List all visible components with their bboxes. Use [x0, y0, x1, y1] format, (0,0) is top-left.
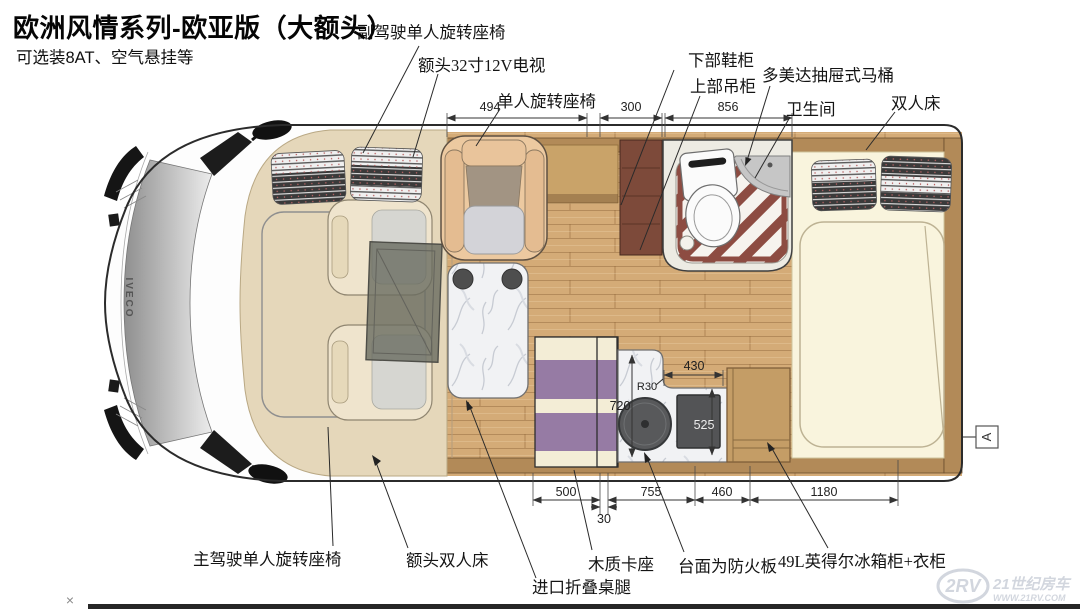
shower-drain [680, 236, 694, 250]
floorplan-page: IVECO [0, 0, 1080, 609]
callout-single-swivel-seat: 单人旋转座椅 [497, 92, 596, 111]
fridge-wardrobe-cabinet [727, 368, 790, 462]
vehicle-brand: IVECO [123, 277, 134, 318]
dim-460: 460 [712, 485, 733, 499]
callout-folding-table-legs: 进口折叠桌腿 [532, 578, 632, 597]
dim-430: 430 [684, 359, 705, 373]
callout-fireproof-countertop: 台面为防火板 [678, 557, 777, 576]
dim-300: 300 [621, 100, 642, 114]
section-marker: A [962, 426, 998, 448]
callout-lower-shoe-cabinet: 下部鞋柜 [688, 51, 754, 70]
bottom-bar [88, 604, 1080, 609]
dim-500: 500 [556, 485, 577, 499]
table-leg [502, 269, 522, 289]
callout-wooden-dinette: 木质卡座 [588, 555, 654, 574]
table-leg [453, 269, 473, 289]
headlight-icon [108, 213, 120, 226]
bed-pillow-right [880, 156, 952, 212]
watermark-logo: 2RV [944, 576, 982, 596]
callout-driver-seat: 主驾驶单人旋转座椅 [193, 550, 342, 569]
shoe-cabinet [620, 140, 662, 255]
callout-fridge-wardrobe: 49L英得尔冰箱柜+衣柜 [778, 552, 946, 571]
single-swivel-seat [441, 136, 547, 260]
overcab-pillow-right [350, 147, 423, 202]
dim-525: 525 [694, 418, 715, 432]
dim-856: 856 [718, 100, 739, 114]
page-subtitle: 可选装8AT、空气悬挂等 [16, 44, 194, 68]
watermark-site-name: 21世纪房车 [992, 575, 1072, 593]
watermark: 2RV 21世纪房车 WWW.21RV.COM [938, 570, 1072, 603]
callout-upper-wall-cabinet: 上部吊柜 [690, 77, 756, 96]
page-title: 欧洲风情系列-欧亚版（大额头） [13, 8, 393, 45]
headlight-icon [108, 379, 120, 392]
callout-bathroom: 卫生间 [786, 100, 836, 119]
callout-overcab-double-bed: 额头双人床 [406, 551, 489, 570]
watermark-site-url: WWW.21RV.COM [993, 593, 1066, 603]
section-label: A [979, 432, 994, 441]
close-icon: × [66, 592, 74, 608]
dim-r30: R30 [637, 381, 657, 393]
dinette-bench [535, 337, 618, 467]
callout-toilet: 多美达抽屉式马桶 [762, 66, 894, 85]
callout-overhead-tv: 额头32寸12V电视 [418, 56, 545, 75]
overcab-pillow-left [271, 150, 347, 205]
overhead-tv [366, 242, 442, 362]
callout-rear-double-bed: 双人床 [891, 94, 941, 113]
dim-1180: 1180 [811, 485, 838, 499]
bathroom-block [663, 140, 792, 271]
overcab-zone [240, 130, 452, 476]
dim-720: 720 [610, 399, 631, 413]
folding-table [448, 263, 528, 398]
bed-pillow-left [811, 159, 877, 211]
dim-30: 30 [597, 512, 611, 526]
